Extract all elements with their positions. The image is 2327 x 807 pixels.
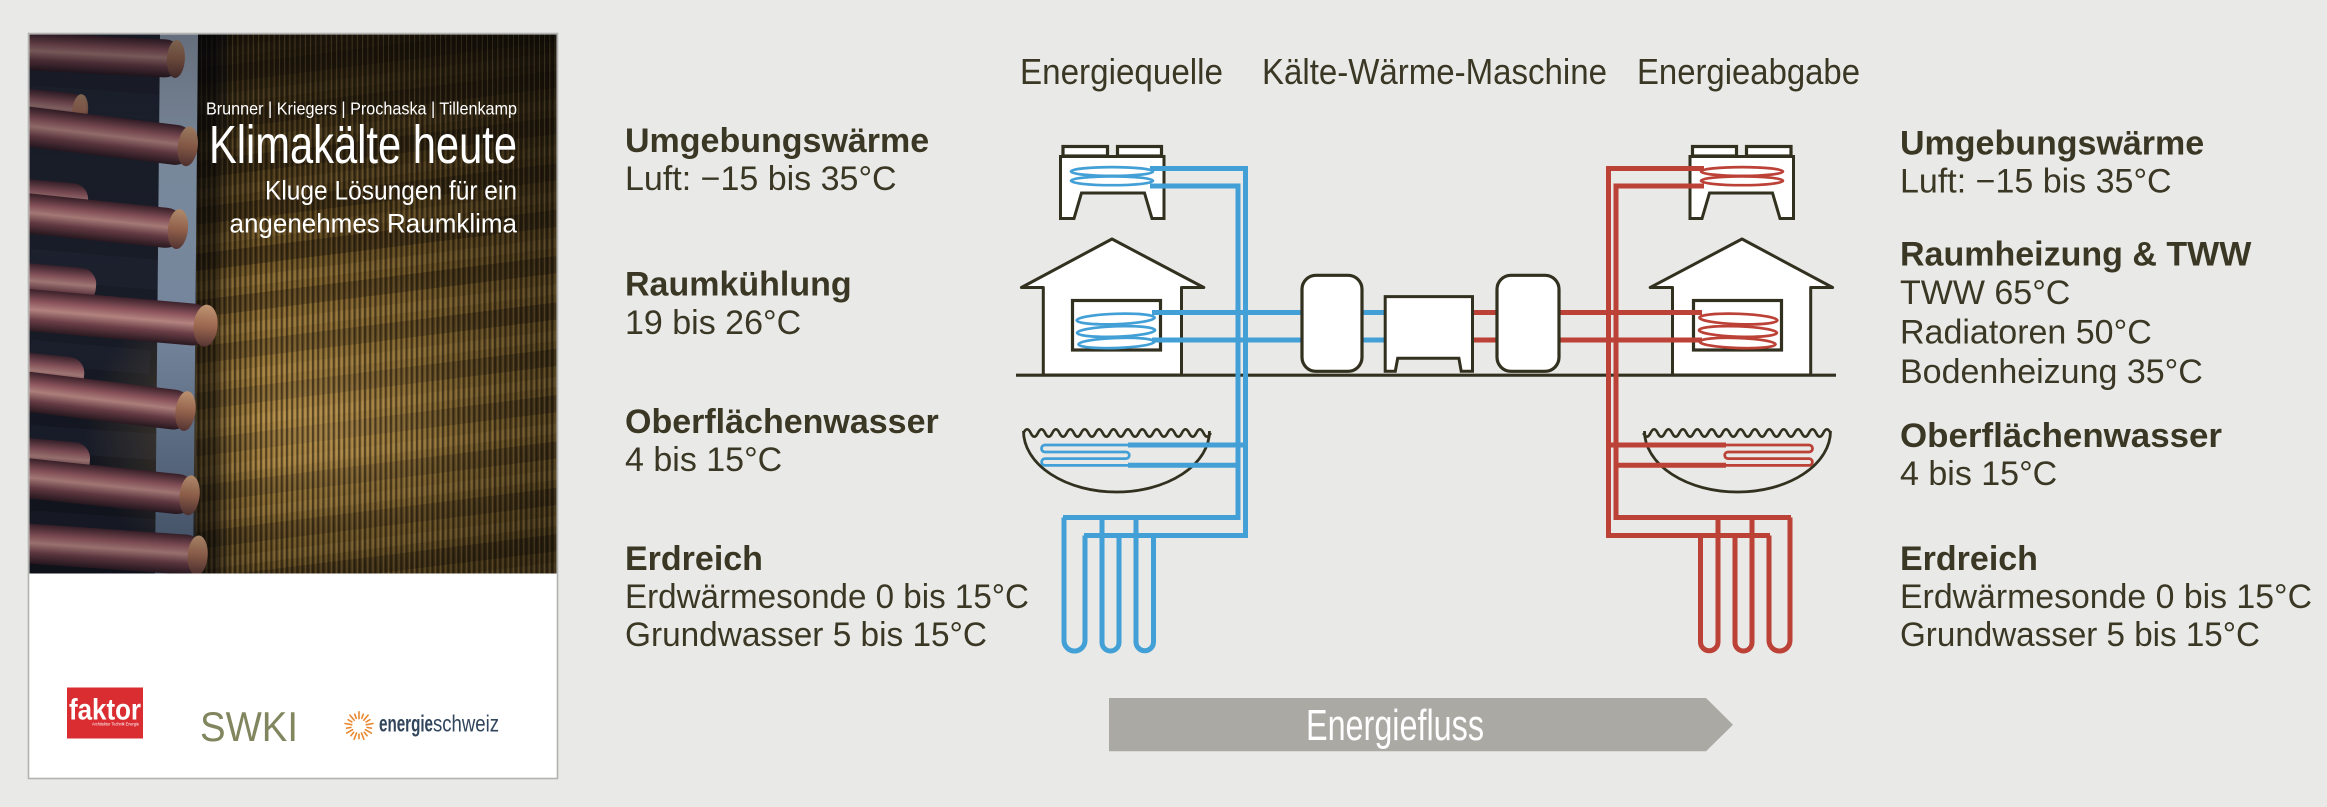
svg-text:angenehmes Raumklima: angenehmes Raumklima [230, 209, 518, 239]
svg-text:Erdwärmesonde 0 bis 15°C: Erdwärmesonde 0 bis 15°C [1900, 578, 2312, 616]
svg-text:Oberflächenwasser: Oberflächenwasser [1900, 417, 2222, 455]
svg-text:Erdwärmesonde 0 bis 15°C: Erdwärmesonde 0 bis 15°C [625, 578, 1029, 616]
svg-text:schweiz: schweiz [433, 711, 499, 737]
svg-text:Luft: −15 bis 35°C: Luft: −15 bis 35°C [1900, 163, 2172, 201]
svg-text:Kälte-Wärme-Maschine: Kälte-Wärme-Maschine [1262, 51, 1607, 92]
svg-text:Umgebungswärme: Umgebungswärme [625, 122, 929, 160]
svg-text:Luft: −15 bis 35°C: Luft: −15 bis 35°C [625, 160, 897, 198]
svg-text:Erdreich: Erdreich [1900, 540, 2038, 578]
svg-text:Erdreich: Erdreich [625, 540, 763, 578]
svg-text:Raumheizung & TWW: Raumheizung & TWW [1900, 236, 2252, 274]
svg-text:Radiatoren 50°C: Radiatoren 50°C [1900, 314, 2152, 352]
svg-text:Bodenheizung 35°C: Bodenheizung 35°C [1900, 353, 2203, 391]
svg-text:Klimakälte heute: Klimakälte heute [209, 115, 517, 175]
svg-text:Energiequelle: Energiequelle [1020, 51, 1223, 92]
svg-text:4 bis 15°C: 4 bis 15°C [1900, 455, 2057, 493]
svg-text:Raumkühlung: Raumkühlung [625, 266, 852, 304]
svg-text:Grundwasser 5 bis 15°C: Grundwasser 5 bis 15°C [625, 616, 987, 654]
svg-text:energie: energie [379, 711, 433, 737]
svg-text:4 bis 15°C: 4 bis 15°C [625, 441, 782, 479]
svg-text:Architektur Technik Energie: Architektur Technik Energie [92, 722, 139, 727]
svg-text:Energieabgabe: Energieabgabe [1637, 51, 1860, 92]
svg-text:19 bis 26°C: 19 bis 26°C [625, 304, 801, 342]
svg-text:Oberflächenwasser: Oberflächenwasser [625, 403, 939, 441]
svg-text:TWW 65°C: TWW 65°C [1900, 274, 2070, 312]
svg-text:Energiefluss: Energiefluss [1306, 701, 1484, 750]
svg-text:SWKI: SWKI [200, 703, 298, 750]
svg-text:Umgebungswärme: Umgebungswärme [1900, 125, 2204, 163]
svg-text:Kluge Lösungen für ein: Kluge Lösungen für ein [265, 176, 517, 206]
svg-text:Grundwasser 5 bis 15°C: Grundwasser 5 bis 15°C [1900, 616, 2260, 654]
